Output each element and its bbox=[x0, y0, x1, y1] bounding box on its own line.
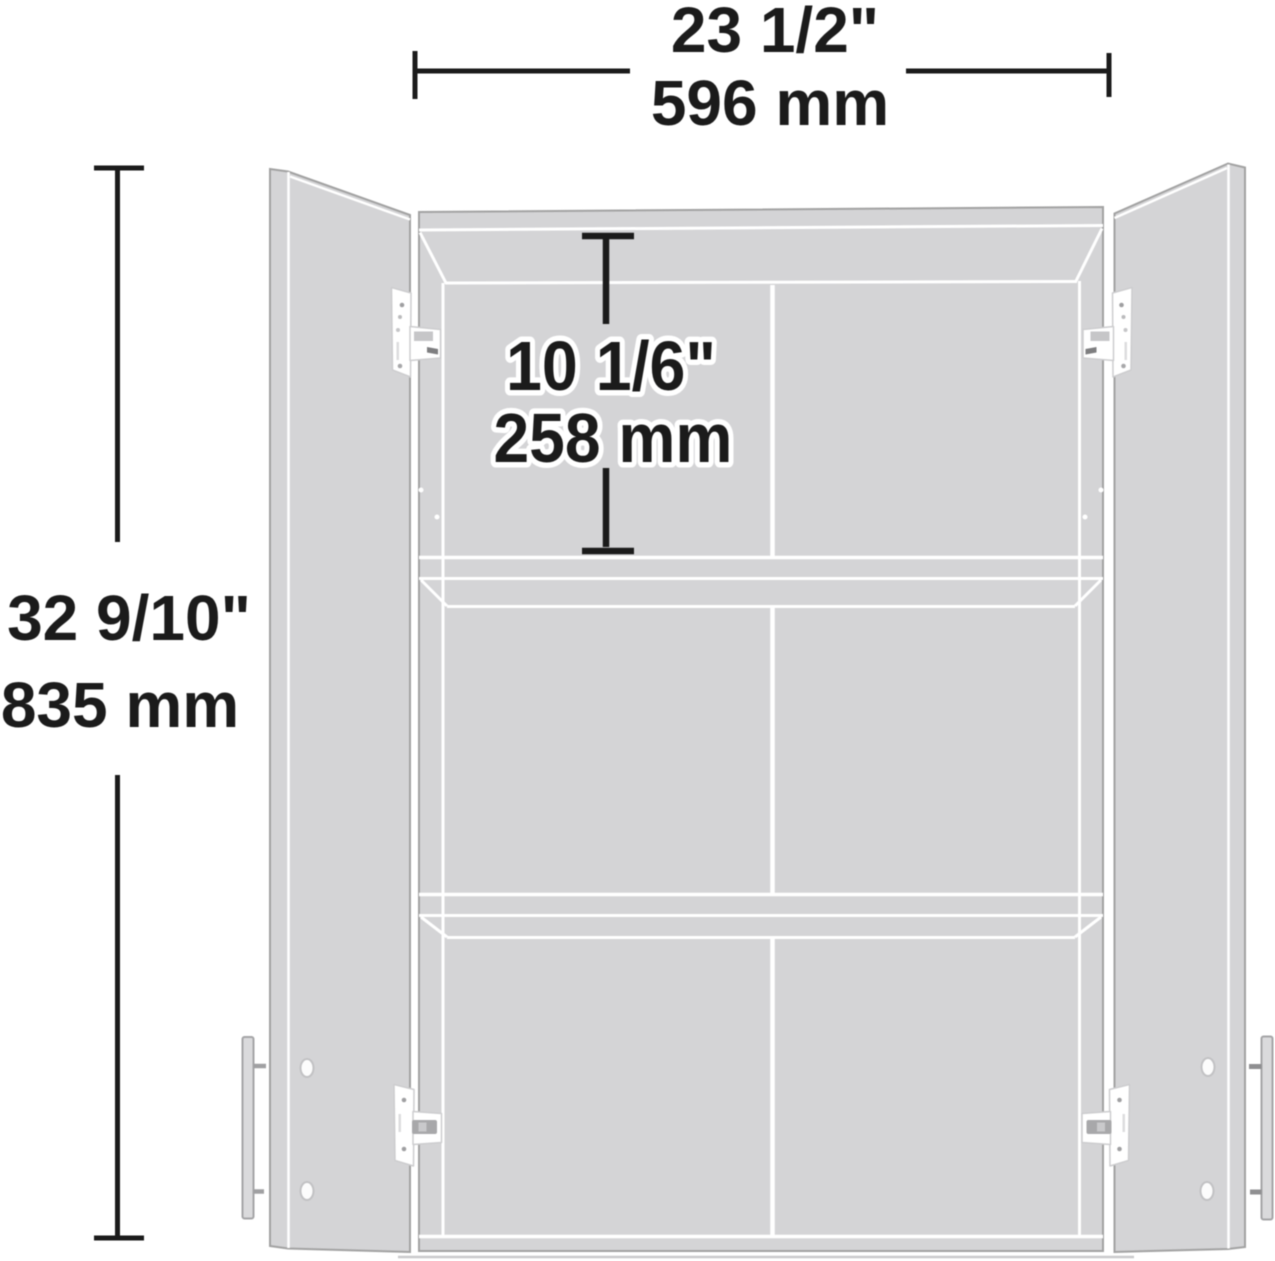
svg-text:258 mm: 258 mm bbox=[494, 399, 733, 477]
svg-text:835 mm: 835 mm bbox=[1, 669, 239, 741]
svg-text:32 9/10": 32 9/10" bbox=[7, 582, 251, 654]
svg-text:596 mm: 596 mm bbox=[651, 67, 889, 139]
svg-text:10 1/6": 10 1/6" bbox=[506, 327, 716, 405]
svg-text:23 1/2": 23 1/2" bbox=[671, 0, 879, 66]
